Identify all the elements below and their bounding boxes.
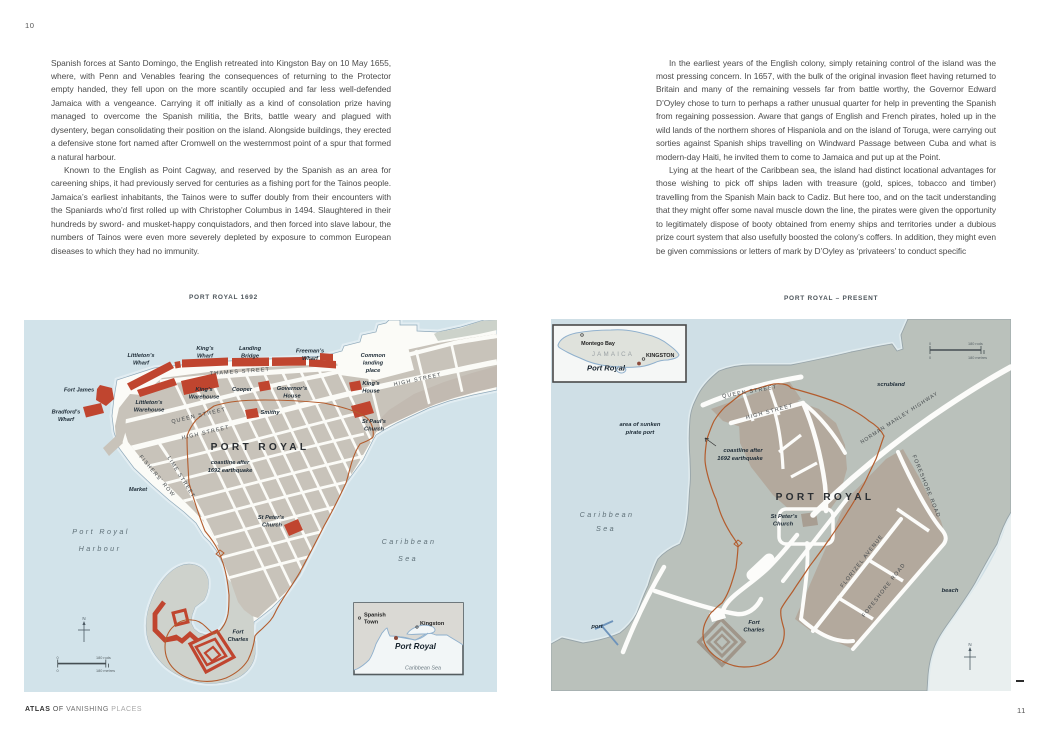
svg-text:Town: Town [364,619,379,625]
svg-text:place: place [365,368,381,374]
svg-text:Spanish: Spanish [364,613,386,619]
svg-text:Charles: Charles [743,628,765,634]
svg-text:Sea: Sea [398,554,418,563]
svg-text:coastline after: coastline after [211,460,250,466]
svg-text:Landing: Landing [239,346,262,352]
svg-text:Governor’s: Governor’s [277,386,307,392]
svg-text:Warehouse: Warehouse [189,395,220,401]
svg-text:0: 0 [929,342,931,346]
svg-text:Fort James: Fort James [64,388,94,394]
svg-text:St Peter’s: St Peter’s [771,514,799,520]
svg-text:St Peter’s: St Peter’s [258,515,284,521]
svg-text:1692 earthquake: 1692 earthquake [208,468,253,474]
svg-text:Fort: Fort [232,630,244,636]
svg-text:Wharf: Wharf [197,354,214,360]
svg-text:Common: Common [361,353,386,359]
svg-text:0: 0 [57,656,59,660]
svg-text:Church: Church [364,427,384,433]
svg-text:Fort: Fort [748,620,760,626]
svg-text:Freeman’s: Freeman’s [296,349,324,355]
svg-text:Caribbean Sea: Caribbean Sea [405,666,441,672]
svg-text:Port Royal: Port Royal [395,642,437,651]
svg-text:N: N [82,616,85,621]
svg-text:St Paul’s: St Paul’s [362,419,386,425]
svg-text:Smithy: Smithy [261,410,281,416]
svg-text:beach: beach [942,588,959,594]
svg-text:King’s: King’s [196,346,213,352]
svg-text:N: N [968,642,971,647]
svg-text:landing: landing [363,361,384,367]
svg-text:port: port [590,624,603,630]
svg-text:Port Royal: Port Royal [72,527,130,536]
svg-text:180 metres: 180 metres [968,356,987,360]
svg-text:Church: Church [262,523,282,529]
svg-text:Bridge: Bridge [241,354,259,360]
svg-text:180 rods: 180 rods [96,656,111,660]
svg-text:PORT ROYAL: PORT ROYAL [776,492,875,503]
svg-text:KINGSTON: KINGSTON [646,353,674,359]
svg-text:area of sunken: area of sunken [620,422,661,428]
svg-text:Market: Market [129,487,148,493]
svg-text:0: 0 [57,669,59,673]
svg-text:Harbour: Harbour [79,544,122,553]
svg-text:Warehouse: Warehouse [134,408,165,414]
svg-text:Bradford’s: Bradford’s [52,410,81,416]
svg-text:pirate port: pirate port [625,430,656,436]
svg-text:Cooper: Cooper [232,387,253,393]
svg-text:Sea: Sea [596,524,616,533]
svg-text:0: 0 [929,356,931,360]
svg-text:PORT ROYAL: PORT ROYAL [211,442,310,453]
svg-text:Caribbean: Caribbean [382,537,437,546]
svg-text:coastline after: coastline after [723,448,763,454]
svg-text:Caribbean: Caribbean [580,510,635,519]
svg-text:House: House [362,389,379,395]
svg-text:Montego Bay: Montego Bay [581,341,615,347]
svg-text:Wharf: Wharf [302,356,319,362]
svg-text:King’s: King’s [195,387,212,393]
svg-text:Littleton’s: Littleton’s [127,353,154,359]
svg-text:King’s: King’s [362,381,379,387]
svg-text:180 rods: 180 rods [968,342,983,346]
svg-text:Port Royal: Port Royal [587,364,626,373]
svg-text:scrubland: scrubland [877,382,905,388]
svg-text:Wharf: Wharf [58,417,75,423]
svg-text:180 metres: 180 metres [96,669,115,673]
svg-text:Kingston: Kingston [420,621,445,627]
svg-text:1692 earthquake: 1692 earthquake [717,456,763,462]
svg-text:JAMAICA: JAMAICA [592,351,634,358]
svg-text:Littleton’s: Littleton’s [135,400,162,406]
svg-text:House: House [283,394,300,400]
svg-text:Wharf: Wharf [133,361,150,367]
svg-text:Charles: Charles [228,637,249,643]
svg-text:Church: Church [773,522,794,528]
